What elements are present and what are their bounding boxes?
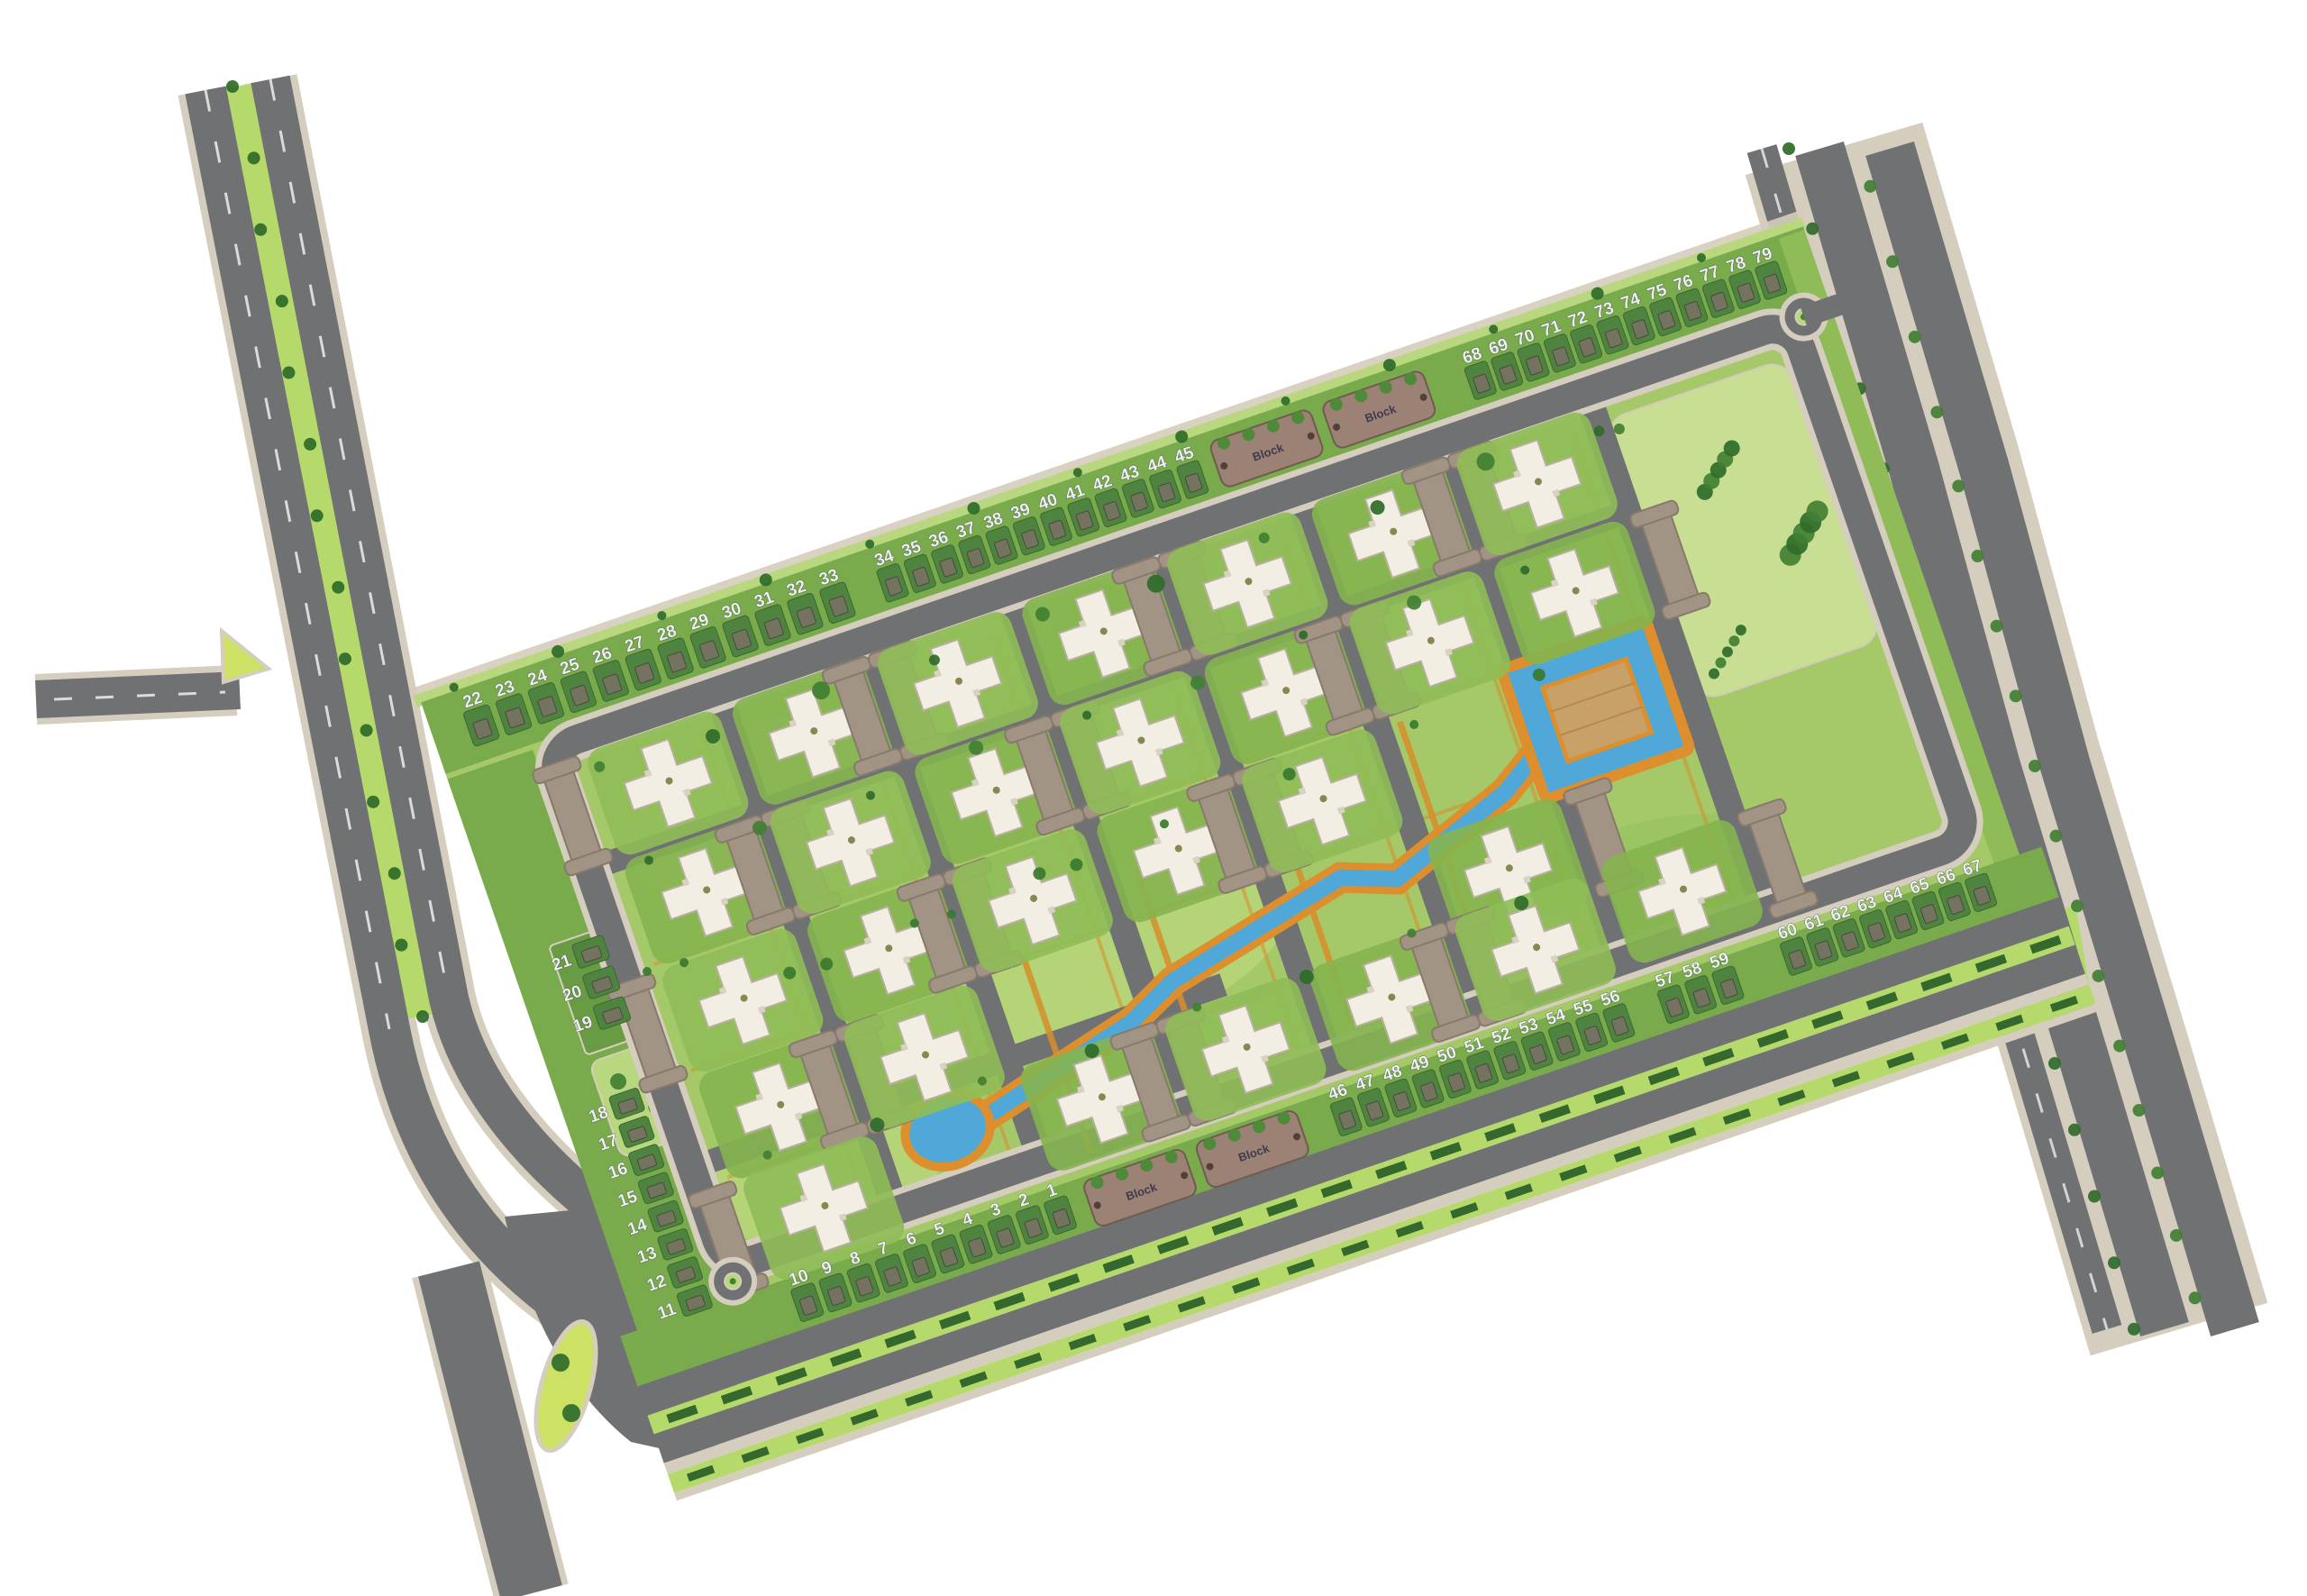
- masterplan-canvas: 2223242526272829303132333435363738394041…: [0, 0, 2307, 1596]
- compound: 2223242526272829303132333435363738394041…: [398, 203, 2100, 1500]
- masterplan-svg: 2223242526272829303132333435363738394041…: [0, 0, 2307, 1596]
- fork-island: [222, 631, 269, 682]
